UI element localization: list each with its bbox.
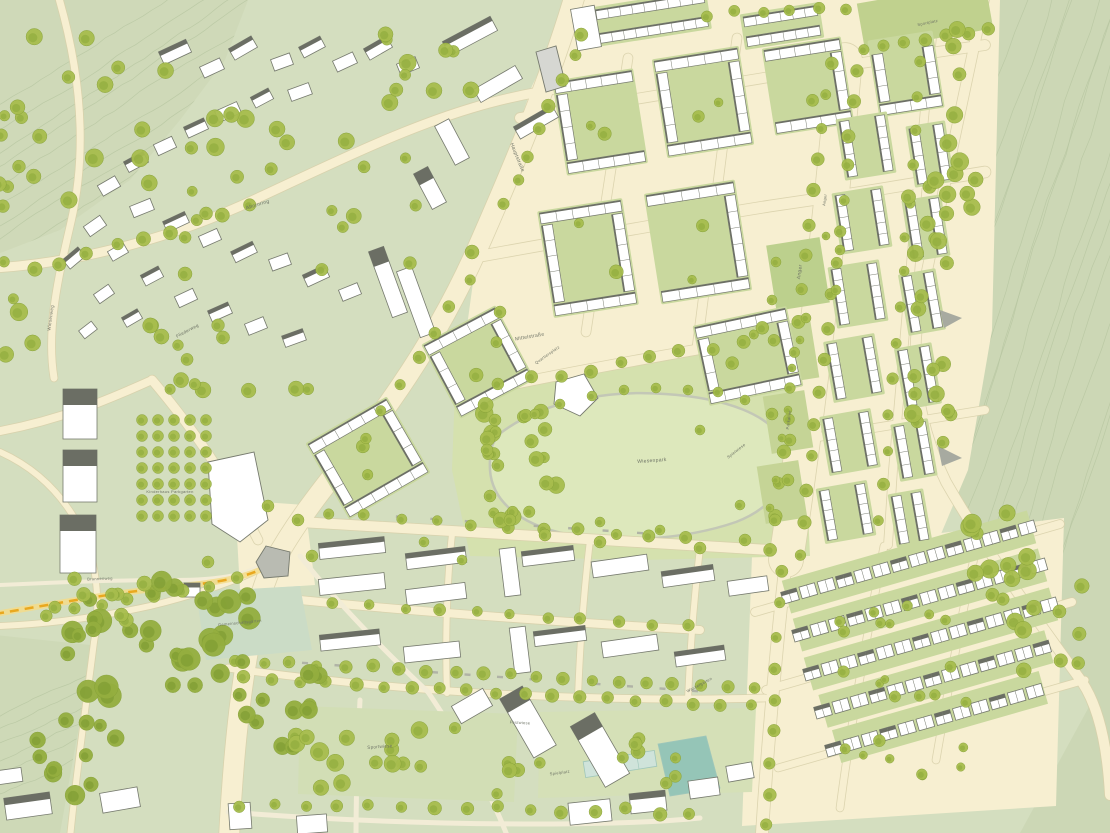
map-label: Kinderhaus Parkgarten <box>146 489 193 494</box>
building <box>688 777 720 799</box>
rowhouse-block <box>831 185 892 254</box>
rowhouse-block <box>823 333 885 403</box>
masterplan-map: AhornringFliederwegWiesenwegHauptstraßeM… <box>0 0 1110 833</box>
rowhouse-block <box>816 480 877 544</box>
masterplan-svg: AhornringFliederwegWiesenwegHauptstraßeM… <box>0 0 1110 833</box>
rowhouse-block <box>819 408 881 476</box>
perimeter-block <box>644 179 752 304</box>
map-label: Brunnenweg <box>87 576 113 582</box>
rowhouse-block <box>835 111 896 180</box>
building <box>60 515 96 573</box>
building <box>296 814 327 833</box>
perimeter-block <box>652 46 755 159</box>
building <box>63 450 97 502</box>
building <box>63 389 97 439</box>
building <box>0 767 23 784</box>
perimeter-block <box>537 198 639 318</box>
